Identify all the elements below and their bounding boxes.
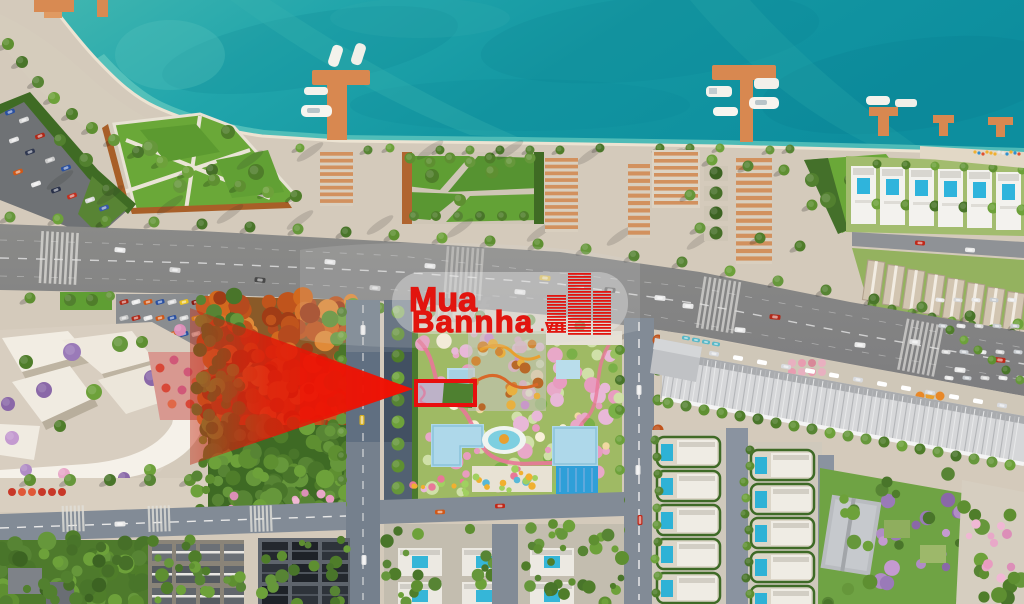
- svg-text:Bannha: Bannha: [412, 304, 533, 339]
- svg-text:.vn: .vn: [540, 316, 565, 335]
